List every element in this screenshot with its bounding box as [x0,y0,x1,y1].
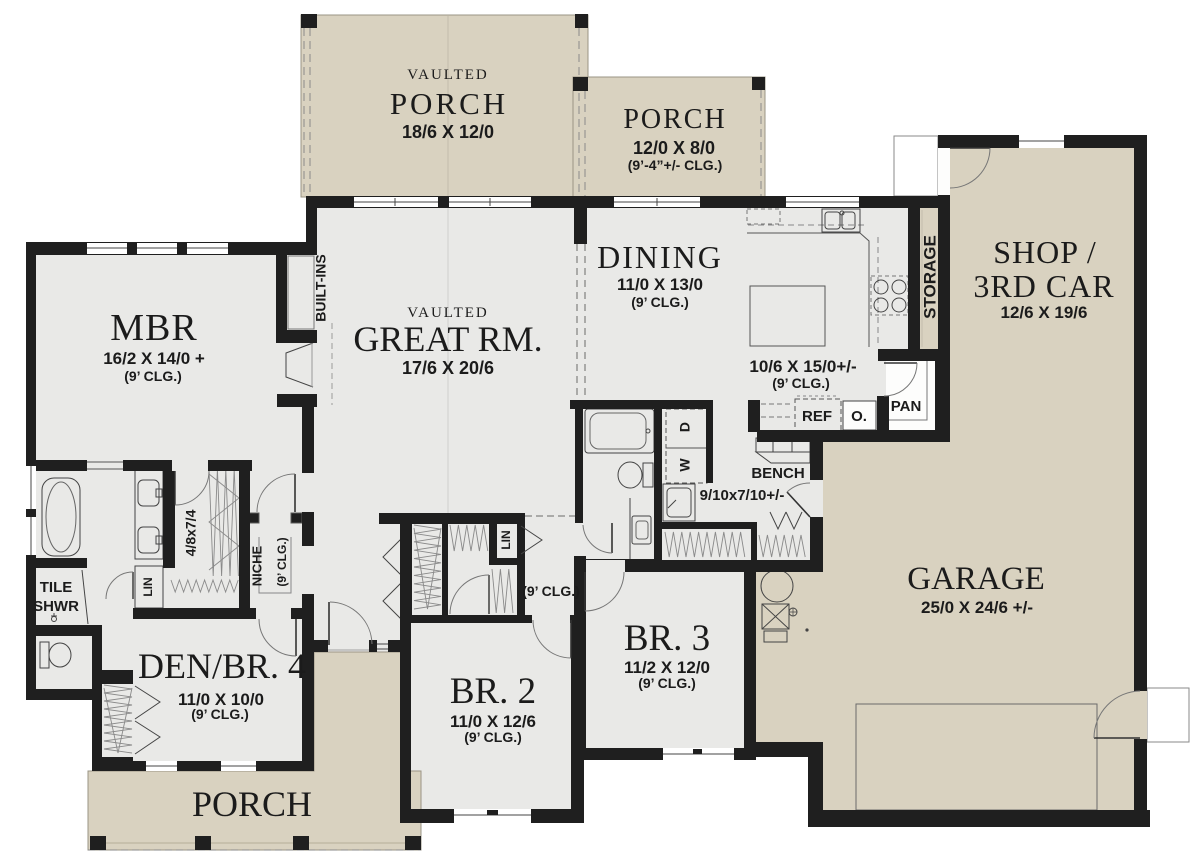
svg-text:PAN: PAN [891,398,922,415]
svg-text:REF: REF [802,408,832,425]
svg-text:PORCH: PORCH [390,86,508,121]
svg-text:DINING: DINING [597,239,723,275]
svg-text:25/0 X 24/6 +/-: 25/0 X 24/6 +/- [921,598,1033,617]
svg-text:NICHE: NICHE [249,545,264,586]
svg-text:(9’ CLG.): (9’ CLG.) [772,375,830,391]
svg-text:GREAT RM.: GREAT RM. [353,319,542,359]
svg-text:17/6 X 20/6: 17/6 X 20/6 [402,358,494,378]
svg-text:BUILT-INS: BUILT-INS [313,254,329,321]
svg-text:SHWR: SHWR [33,598,79,615]
svg-text:(9’ CLG.): (9’ CLG.) [124,368,182,384]
svg-text:LIN: LIN [499,530,513,549]
svg-text:(9’ CLG.): (9’ CLG.) [638,675,696,691]
svg-text:PORCH: PORCH [192,784,312,824]
svg-text:BENCH: BENCH [751,465,804,482]
svg-text:16/2 X 14/0 +: 16/2 X 14/0 + [103,349,205,368]
svg-text:D: D [677,422,693,432]
svg-text:12/6 X 19/6: 12/6 X 19/6 [1001,303,1088,322]
svg-text:STORAGE: STORAGE [920,235,939,319]
svg-text:(9’ CLG.): (9’ CLG.) [191,706,249,722]
svg-text:DEN/BR. 4: DEN/BR. 4 [138,646,306,686]
svg-text:W: W [677,458,693,472]
svg-text:3RD CAR: 3RD CAR [973,268,1114,304]
svg-text:BR. 2: BR. 2 [450,671,536,712]
svg-text:12/0 X 8/0: 12/0 X 8/0 [633,138,715,158]
svg-text:10/6 X 15/0+/-: 10/6 X 15/0+/- [749,357,856,376]
svg-text:11/0 X 13/0: 11/0 X 13/0 [617,275,703,294]
svg-text:PORCH: PORCH [623,104,726,135]
svg-text:O.: O. [851,408,867,425]
svg-text:(9’ CLG.): (9’ CLG.) [275,537,289,586]
svg-text:9/10x7/10+/-: 9/10x7/10+/- [700,487,785,504]
svg-text:TILE: TILE [40,579,73,596]
svg-text:BR. 3: BR. 3 [624,618,710,659]
svg-text:LIN: LIN [141,577,155,596]
svg-text:GARAGE: GARAGE [907,561,1045,597]
svg-text:18/6 X 12/0: 18/6 X 12/0 [402,122,494,142]
svg-text:(9’-4”+/- CLG.): (9’-4”+/- CLG.) [628,157,723,173]
svg-text:(9’ CLG.): (9’ CLG.) [631,294,689,310]
svg-text:(9’ CLG.): (9’ CLG.) [522,583,580,599]
svg-text:MBR: MBR [110,307,197,349]
svg-text:VAULTED: VAULTED [407,67,489,83]
svg-text:(9’ CLG.): (9’ CLG.) [464,729,522,745]
svg-text:4/8x7/4: 4/8x7/4 [183,509,199,556]
svg-text:SHOP /: SHOP / [993,234,1097,270]
